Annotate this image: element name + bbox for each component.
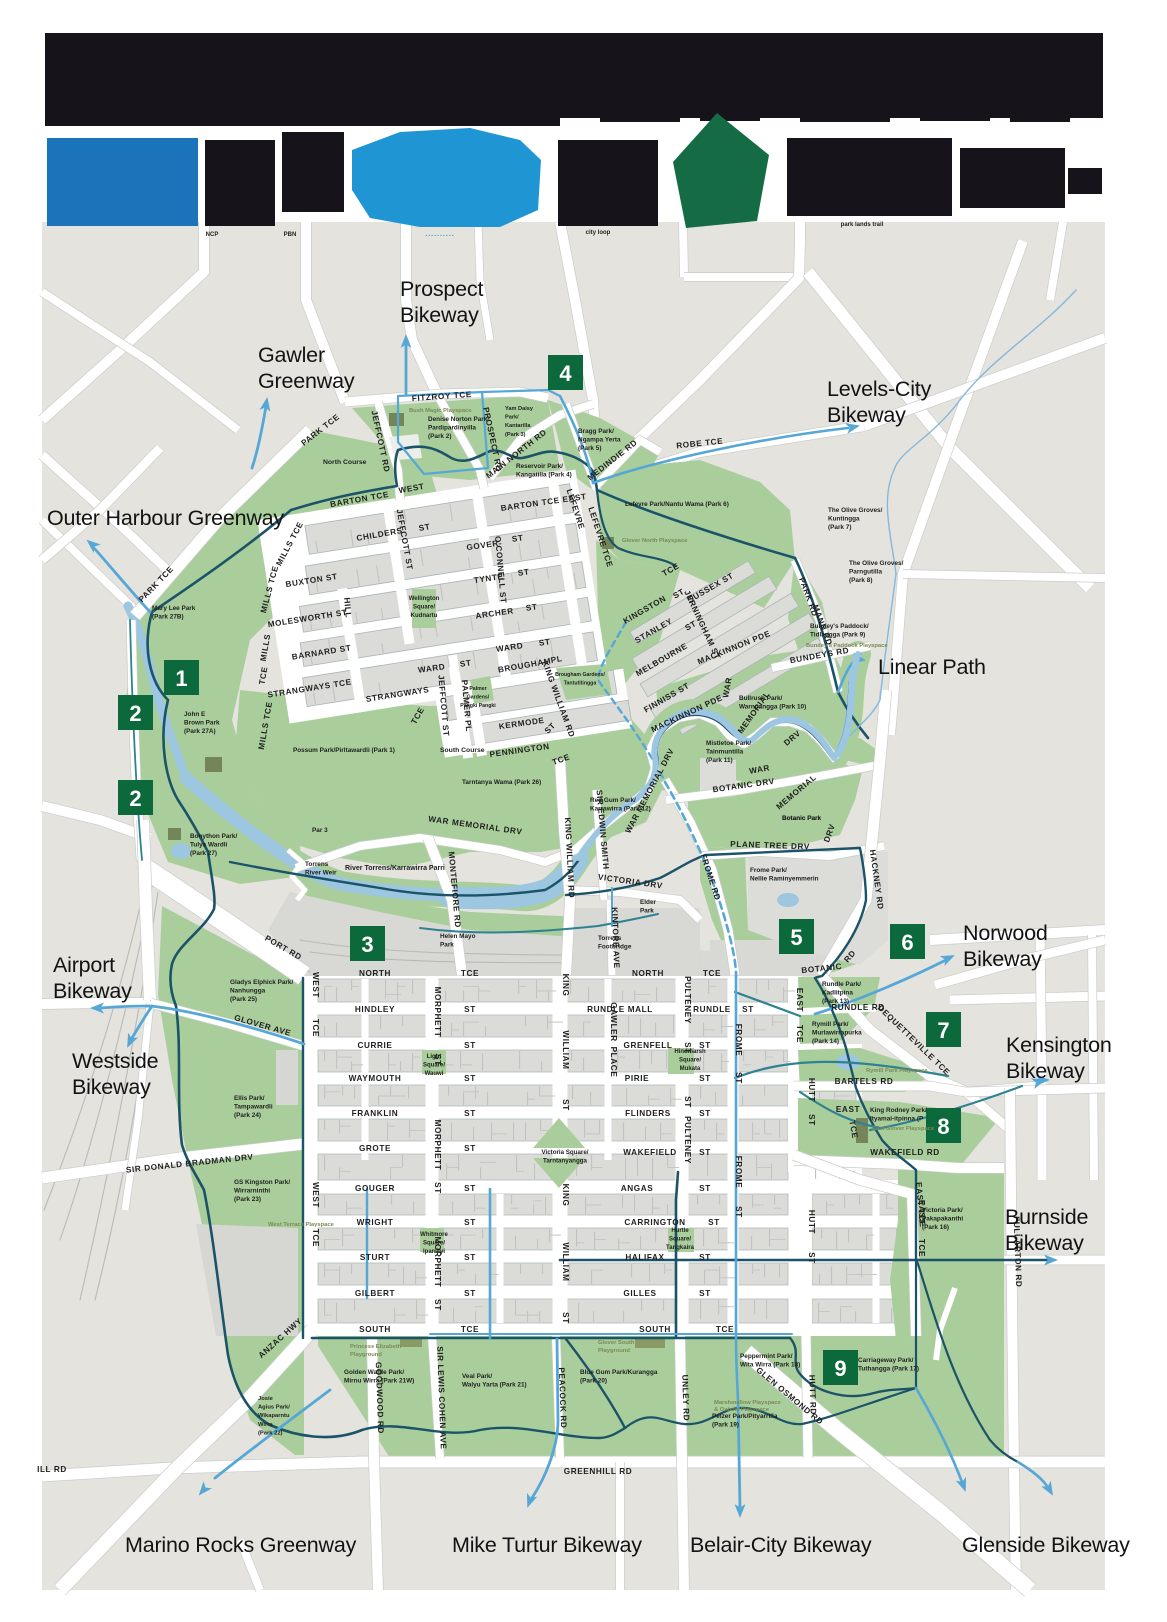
svg-text:Gawler: Gawler (258, 343, 325, 367)
svg-text:Torrens: Torrens (305, 861, 329, 868)
svg-text:city loop: city loop (586, 230, 611, 236)
svg-text:Torrens: Torrens (598, 935, 622, 942)
svg-text:Elder: Elder (640, 899, 656, 906)
svg-text:East Glover Playspace: East Glover Playspace (872, 1126, 935, 1132)
svg-text:Iparrityi: Iparrityi (423, 1249, 445, 1255)
svg-text:ST: ST (511, 533, 524, 544)
svg-text:Bundey's Paddock Playspace: Bundey's Paddock Playspace (806, 643, 888, 649)
svg-text:Hindmarsh: Hindmarsh (674, 1049, 706, 1055)
svg-text:Rymill Park/: Rymill Park/ (812, 1021, 849, 1028)
svg-text:KING: KING (561, 1184, 570, 1207)
svg-text:FROME: FROME (734, 1024, 743, 1057)
svg-text:(Park 8): (Park 8) (849, 577, 872, 584)
svg-text:WILLIAM: WILLIAM (561, 1242, 570, 1281)
svg-text:9: 9 (834, 1356, 846, 1381)
svg-text:Wellington: Wellington (409, 596, 440, 602)
svg-text:Light: Light (427, 1054, 442, 1060)
svg-text:Par 3: Par 3 (312, 827, 328, 834)
svg-text:(Park 3): (Park 3) (505, 432, 526, 438)
svg-text:Red Gum Park/: Red Gum Park/ (590, 797, 636, 804)
svg-text:Helen Mayo: Helen Mayo (440, 933, 476, 940)
svg-text:(Park 16): (Park 16) (922, 1224, 949, 1231)
svg-text:GOUGER: GOUGER (355, 1184, 395, 1193)
svg-text:Gladys Elphick Park/: Gladys Elphick Park/ (230, 979, 293, 986)
svg-text:(Park 14): (Park 14) (812, 1038, 839, 1045)
svg-text:UNLEY RD: UNLEY RD (680, 1375, 691, 1422)
svg-text:Bikeway: Bikeway (400, 303, 479, 327)
svg-text:GAWLER: GAWLER (609, 1002, 618, 1042)
svg-text:Park/: Park/ (505, 415, 519, 421)
svg-text:WAKEFIELD RD: WAKEFIELD RD (870, 1148, 940, 1157)
svg-text:River Torrens/Karrawirra Parri: River Torrens/Karrawirra Parri (345, 865, 445, 872)
svg-text:Levels-City: Levels-City (827, 377, 932, 401)
svg-text:ST: ST (708, 1218, 720, 1227)
svg-text:(Park 19): (Park 19) (712, 1422, 739, 1429)
svg-text:(Park 23): (Park 23) (234, 1196, 261, 1203)
svg-text:4: 4 (559, 361, 572, 386)
svg-text:2: 2 (129, 701, 141, 726)
svg-text:Warnpangga (Park 10): Warnpangga (Park 10) (739, 704, 806, 711)
svg-text:MORPHETT: MORPHETT (433, 1120, 442, 1171)
svg-text:ST: ST (433, 1299, 442, 1311)
svg-text:5: 5 (790, 925, 802, 950)
svg-text:Pangki Pangki: Pangki Pangki (460, 703, 496, 709)
svg-text:Tulya Wardli: Tulya Wardli (190, 842, 228, 849)
svg-text:Marshmallow Playspace: Marshmallow Playspace (714, 1400, 781, 1406)
svg-text:Wikaparntu: Wikaparntu (258, 1413, 290, 1419)
svg-text:ILL RD: ILL RD (37, 1465, 67, 1474)
svg-text:Bikeway: Bikeway (72, 1075, 151, 1099)
svg-text:ST: ST (807, 1114, 816, 1126)
svg-text:Tarntanyangga: Tarntanyangga (543, 1158, 587, 1165)
svg-text:John E: John E (184, 711, 206, 718)
svg-text:ST: ST (517, 567, 530, 578)
svg-text:ANGAS: ANGAS (621, 1184, 654, 1193)
svg-text:Denise Norton Park/: Denise Norton Park/ (428, 416, 489, 423)
svg-text:Bragg Park/: Bragg Park/ (578, 428, 614, 435)
svg-text:park lands trail: park lands trail (841, 222, 884, 228)
svg-text:FLINDERS: FLINDERS (625, 1109, 671, 1118)
svg-text:GS Kingston Park/: GS Kingston Park/ (234, 1179, 290, 1186)
svg-text:Gardens/: Gardens/ (467, 695, 490, 701)
svg-text:PBN: PBN (284, 232, 297, 238)
svg-text:SOUTH: SOUTH (639, 1325, 671, 1334)
svg-text:Square/: Square/ (679, 1058, 701, 1064)
svg-text:FROME: FROME (734, 1156, 743, 1189)
svg-text:Tantutitingga: Tantutitingga (564, 681, 597, 687)
svg-text:ST: ST (459, 658, 472, 669)
svg-text:Lefevre Park/Nantu Wama (Park: Lefevre Park/Nantu Wama (Park 6) (625, 501, 729, 508)
svg-text:Rymill Park Playspace: Rymill Park Playspace (866, 1068, 928, 1074)
svg-text:CARRINGTON: CARRINGTON (624, 1218, 685, 1227)
svg-text:ST: ST (464, 1041, 476, 1050)
svg-text:Nellie Raminyemmerin: Nellie Raminyemmerin (750, 876, 819, 883)
svg-text:STURT: STURT (360, 1253, 390, 1262)
svg-text:PLACE: PLACE (609, 1047, 618, 1078)
svg-text:Belair-City Bikeway: Belair-City Bikeway (690, 1533, 872, 1557)
svg-text:GILBERT: GILBERT (355, 1289, 395, 1298)
svg-text:Ellis Park/: Ellis Park/ (234, 1095, 265, 1102)
svg-text:EAST: EAST (836, 1105, 860, 1114)
svg-text:Wirra: Wirra (258, 1422, 274, 1428)
svg-text:Glover North Playspace: Glover North Playspace (622, 538, 688, 544)
svg-text:Agius Park/: Agius Park/ (258, 1405, 290, 1411)
svg-text:TCE: TCE (461, 969, 479, 978)
svg-text:Tarntanya Wama (Park 26): Tarntanya Wama (Park 26) (462, 779, 541, 786)
svg-text:(Park 27B): (Park 27B) (152, 614, 184, 621)
svg-text:TCE: TCE (311, 1019, 320, 1037)
svg-text:Kangatilla (Park 4): Kangatilla (Park 4) (516, 472, 572, 479)
svg-text:Mary Lee Park: Mary Lee Park (152, 605, 196, 612)
svg-text:Hurtle: Hurtle (671, 1228, 689, 1234)
svg-text:(Park 27): (Park 27) (190, 850, 217, 857)
svg-text:KING: KING (561, 974, 570, 997)
svg-text:Princess Elizabeth: Princess Elizabeth (350, 1344, 402, 1350)
svg-text:Kensington: Kensington (1006, 1033, 1112, 1057)
svg-text:ST: ST (464, 1289, 476, 1298)
svg-text:Airport: Airport (53, 953, 115, 977)
svg-text:ST: ST (464, 1218, 476, 1227)
svg-text:WRIGHT: WRIGHT (357, 1218, 394, 1227)
svg-text:(Park 24): (Park 24) (234, 1112, 261, 1119)
svg-text:(Park 5): (Park 5) (578, 445, 601, 452)
svg-text:ST: ST (699, 1109, 711, 1118)
svg-text:The Olive Groves/: The Olive Groves/ (828, 507, 883, 514)
svg-text:TCE: TCE (461, 1325, 479, 1334)
svg-text:North Course: North Course (323, 459, 367, 466)
svg-text:NCP: NCP (206, 232, 219, 238)
svg-text:GROTE: GROTE (359, 1144, 391, 1153)
svg-text:Norwood: Norwood (963, 921, 1048, 945)
svg-text:GILLES: GILLES (623, 1289, 656, 1298)
svg-text:The Olive Groves/: The Olive Groves/ (849, 560, 904, 567)
svg-text:Tainmuntilla: Tainmuntilla (706, 749, 744, 756)
svg-text:Bikeway: Bikeway (53, 979, 132, 1003)
svg-text:HUTT: HUTT (807, 1078, 816, 1102)
svg-text:Frome Park/: Frome Park/ (750, 867, 787, 874)
svg-text:River Weir: River Weir (305, 870, 337, 877)
svg-text:Pakapakanthi: Pakapakanthi (922, 1216, 963, 1223)
svg-text:GREENHILL RD: GREENHILL RD (564, 1467, 632, 1476)
svg-text:Blue Gum Park/Kurangga: Blue Gum Park/Kurangga (580, 1369, 658, 1376)
svg-text:PIRIE: PIRIE (625, 1074, 649, 1083)
svg-text:(Park 27A): (Park 27A) (184, 728, 216, 735)
svg-text:Linear Path: Linear Path (878, 655, 986, 679)
svg-text:ST: ST (699, 1148, 711, 1157)
svg-text:ST: ST (699, 1253, 711, 1262)
svg-text:ST: ST (561, 1099, 570, 1111)
svg-text:GRENFELL: GRENFELL (624, 1041, 673, 1050)
svg-text:Reservoir Park/: Reservoir Park/ (516, 463, 563, 470)
svg-text:West Terrace Playspace: West Terrace Playspace (268, 1222, 335, 1228)
svg-text:Bonython Park/: Bonython Park/ (190, 833, 237, 840)
svg-text:MORPHETT: MORPHETT (433, 987, 442, 1038)
svg-text:SOUTH: SOUTH (359, 1325, 391, 1334)
svg-text:ST: ST (683, 1096, 692, 1108)
svg-text:ST: ST (699, 1074, 711, 1083)
svg-text:7: 7 (937, 1018, 949, 1043)
svg-text:ST: ST (464, 1005, 476, 1014)
svg-text:TCE: TCE (917, 1239, 926, 1257)
svg-text:ST: ST (538, 637, 551, 648)
svg-text:WAKEFIELD: WAKEFIELD (623, 1148, 677, 1157)
svg-text:Greenway: Greenway (258, 369, 355, 393)
svg-text:(Park 20): (Park 20) (580, 1378, 607, 1385)
svg-text:ST: ST (699, 1289, 711, 1298)
svg-text:Botanic Park: Botanic Park (782, 815, 822, 822)
svg-text:FRANKLIN: FRANKLIN (352, 1109, 399, 1118)
svg-text:HILL: HILL (342, 597, 353, 618)
svg-text:Pardipardinyilla: Pardipardinyilla (428, 425, 476, 432)
svg-text:Kuntingga: Kuntingga (828, 516, 860, 523)
svg-text:TCE: TCE (795, 1025, 804, 1043)
svg-text:TCE: TCE (311, 1229, 320, 1247)
svg-text:Peppermint Park/: Peppermint Park/ (740, 1353, 793, 1360)
svg-text:Glenside Bikeway: Glenside Bikeway (962, 1533, 1130, 1557)
svg-text:(Park 22): (Park 22) (258, 1430, 283, 1436)
svg-text:Palmer: Palmer (469, 686, 486, 692)
svg-text:Kadlitpina: Kadlitpina (822, 990, 853, 997)
svg-text:Whitmore: Whitmore (420, 1232, 448, 1238)
svg-text:Bundey's Paddock/: Bundey's Paddock/ (810, 623, 869, 630)
svg-text:ST: ST (464, 1253, 476, 1262)
svg-text:Tuthangga (Park 17): Tuthangga (Park 17) (858, 1366, 919, 1373)
svg-text:HINDLEY: HINDLEY (355, 1005, 395, 1014)
svg-text:Square/: Square/ (413, 605, 435, 611)
svg-text:Josie: Josie (258, 1396, 274, 1402)
svg-text:ST: ST (433, 1182, 442, 1194)
svg-text:Bikeway: Bikeway (963, 947, 1042, 971)
svg-text:ST: ST (464, 1144, 476, 1153)
svg-text:Bikeway: Bikeway (1006, 1059, 1085, 1083)
svg-text:TCE: TCE (703, 969, 721, 978)
svg-text:Kantarilla: Kantarilla (505, 423, 531, 429)
svg-text:Brougham Gardens/: Brougham Gardens/ (555, 672, 605, 678)
svg-text:Footbridge: Footbridge (598, 944, 632, 951)
svg-text:ST: ST (561, 1312, 570, 1324)
svg-text:Parngutilla: Parngutilla (849, 569, 882, 576)
svg-text:NORTH: NORTH (632, 969, 664, 978)
svg-text:BARTELS RD: BARTELS RD (835, 1077, 894, 1086)
svg-text:Mistletoe Park/: Mistletoe Park/ (706, 740, 751, 747)
svg-text:Westside: Westside (72, 1049, 158, 1073)
svg-text:Bullrush Park/: Bullrush Park/ (739, 695, 783, 702)
svg-text:WAYMOUTH: WAYMOUTH (349, 1074, 402, 1083)
svg-text:Ityamai-itpinna (P: Ityamai-itpinna (P (870, 1116, 924, 1123)
svg-text:Square/: Square/ (423, 1063, 445, 1069)
svg-text:Walyu Yarta (Park 21): Walyu Yarta (Park 21) (462, 1382, 527, 1389)
svg-text:Brown Park: Brown Park (184, 720, 220, 727)
svg-text:RUNDLE: RUNDLE (693, 1005, 731, 1014)
svg-text:Veal Park/: Veal Park/ (462, 1373, 492, 1380)
svg-text:Golden Wattle Park/: Golden Wattle Park/ (344, 1369, 404, 1376)
svg-text:Mirnu Wirra (Park 21W): Mirnu Wirra (Park 21W) (344, 1378, 414, 1385)
svg-text:CURRIE: CURRIE (358, 1041, 393, 1050)
svg-text:WILLIAM: WILLIAM (561, 1030, 570, 1069)
svg-text:Pelzer Park/Pityarrilla: Pelzer Park/Pityarrilla (712, 1413, 778, 1420)
svg-text:ST: ST (525, 602, 538, 613)
svg-text:Wirrarninthi: Wirrarninthi (234, 1188, 270, 1195)
svg-text:Rundle Park/: Rundle Park/ (822, 981, 861, 988)
svg-text:EAST: EAST (795, 988, 804, 1012)
svg-text:South Course: South Course (440, 747, 485, 754)
svg-text:Playground: Playground (598, 1348, 630, 1354)
svg-text:(Park 13): (Park 13) (822, 998, 849, 1005)
svg-text:Bush Magic Playspace: Bush Magic Playspace (409, 408, 472, 414)
svg-text:1: 1 (175, 666, 187, 691)
svg-text:Burnside: Burnside (1005, 1205, 1088, 1229)
svg-text:Tangkaira: Tangkaira (666, 1245, 695, 1251)
svg-text:ST: ST (807, 1252, 816, 1264)
svg-text:ST: ST (464, 1109, 476, 1118)
svg-text:ST: ST (734, 1206, 743, 1218)
svg-text:Tampawardli: Tampawardli (234, 1104, 273, 1111)
svg-text:..........: .......... (425, 231, 454, 238)
svg-text:Prospect: Prospect (400, 277, 483, 301)
svg-text:RUNDLE MALL: RUNDLE MALL (587, 1005, 653, 1014)
svg-text:Nanhungga: Nanhungga (230, 988, 266, 995)
svg-text:8: 8 (937, 1114, 949, 1139)
svg-text:Glover South: Glover South (598, 1340, 635, 1346)
svg-text:Karrawirra (Park 12): Karrawirra (Park 12) (590, 806, 651, 813)
svg-text:(Park 2): (Park 2) (428, 433, 451, 440)
svg-text:NORTH: NORTH (359, 969, 391, 978)
svg-text:Victoria Park/: Victoria Park/ (922, 1207, 963, 1214)
svg-text:6: 6 (901, 930, 913, 955)
svg-text:2: 2 (129, 786, 141, 811)
svg-text:Bikeway: Bikeway (827, 403, 906, 427)
svg-text:ST: ST (742, 1005, 754, 1014)
svg-text:WEST: WEST (311, 972, 320, 998)
svg-text:Mike Turtur Bikeway: Mike Turtur Bikeway (452, 1533, 642, 1557)
svg-text:Park: Park (640, 908, 654, 915)
svg-text:PULTENEY: PULTENEY (683, 976, 692, 1024)
svg-text:3: 3 (361, 932, 373, 957)
svg-text:Marino Rocks Greenway: Marino Rocks Greenway (125, 1533, 357, 1557)
svg-text:Bikeway: Bikeway (1005, 1231, 1084, 1255)
svg-text:PULTENEY: PULTENEY (683, 1116, 692, 1164)
svg-text:Victoria Square/: Victoria Square/ (542, 1149, 589, 1156)
svg-text:HALIFAX: HALIFAX (625, 1253, 664, 1262)
svg-text:& Oxbow Playspace: & Oxbow Playspace (714, 1407, 770, 1413)
svg-text:Square/: Square/ (423, 1241, 445, 1247)
svg-text:King Rodney Park/: King Rodney Park/ (870, 1107, 927, 1114)
svg-text:(Park 25): (Park 25) (230, 996, 257, 1003)
svg-text:Ngampa Yerta: Ngampa Yerta (578, 437, 621, 444)
svg-text:Yam Daisy: Yam Daisy (505, 406, 534, 412)
svg-text:Kudnartu: Kudnartu (411, 613, 438, 619)
svg-text:ST: ST (464, 1184, 476, 1193)
svg-text:ST: ST (699, 1184, 711, 1193)
svg-text:HUTT: HUTT (807, 1210, 816, 1234)
svg-text:Wauwi: Wauwi (425, 1071, 444, 1077)
svg-text:Playground: Playground (350, 1352, 382, 1358)
svg-text:(Park 11): (Park 11) (706, 757, 733, 764)
svg-text:ST: ST (734, 1072, 743, 1084)
svg-text:Tidlangga (Park 9): Tidlangga (Park 9) (810, 632, 865, 639)
svg-text:Carriageway Park/: Carriageway Park/ (858, 1357, 914, 1364)
svg-text:Outer Harbour Greenway: Outer Harbour Greenway (47, 506, 284, 530)
svg-text:HUTT RD: HUTT RD (807, 1375, 817, 1415)
svg-text:Park: Park (440, 942, 454, 949)
svg-text:WEST: WEST (311, 1182, 320, 1208)
svg-text:Mukata: Mukata (680, 1066, 701, 1072)
svg-text:ST: ST (464, 1074, 476, 1083)
svg-text:Possum Park/Pirltawardli (Park: Possum Park/Pirltawardli (Park 1) (293, 747, 395, 754)
svg-text:Wita Wirra (Park 18): Wita Wirra (Park 18) (740, 1362, 800, 1369)
svg-text:Square/: Square/ (669, 1237, 691, 1243)
svg-text:TCE: TCE (716, 1325, 734, 1334)
svg-text:Murlawirrapurka: Murlawirrapurka (812, 1030, 862, 1037)
svg-text:(Park 7): (Park 7) (828, 524, 851, 531)
